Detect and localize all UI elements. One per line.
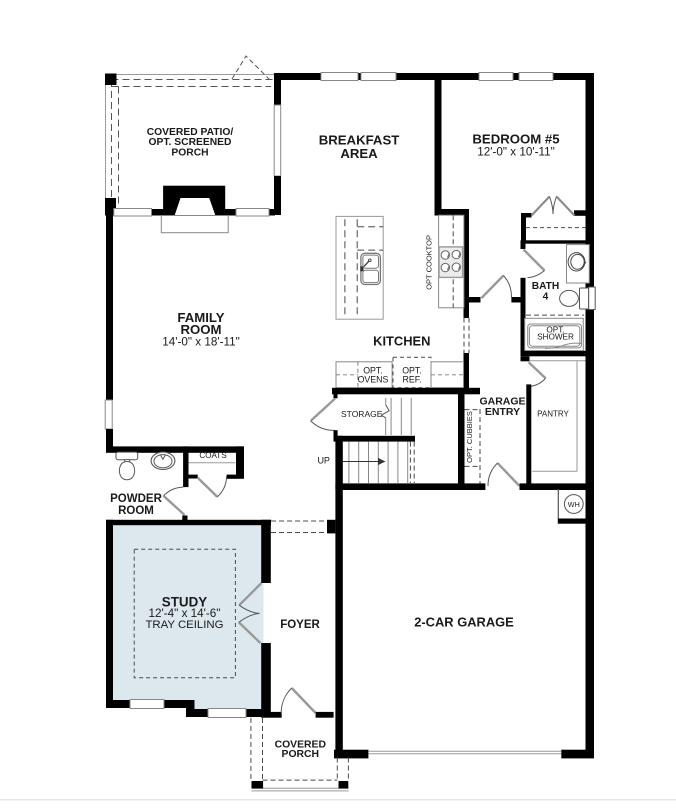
svg-text:BATH: BATH xyxy=(532,281,560,292)
svg-text:PANTRY: PANTRY xyxy=(537,409,569,418)
svg-text:POWDER: POWDER xyxy=(110,493,162,505)
svg-text:SHOWER: SHOWER xyxy=(537,332,574,341)
svg-text:OVENS: OVENS xyxy=(358,375,389,385)
svg-text:COATS: COATS xyxy=(199,451,227,460)
svg-text:PORCH: PORCH xyxy=(171,147,208,158)
svg-text:FOYER: FOYER xyxy=(280,619,320,631)
svg-text:AREA: AREA xyxy=(340,146,378,161)
svg-text:ENTRY: ENTRY xyxy=(485,406,520,418)
svg-text:4: 4 xyxy=(543,292,549,303)
svg-text:PORCH: PORCH xyxy=(282,749,320,760)
svg-text:WH: WH xyxy=(568,500,580,509)
svg-text:12'-0" x 10'-11": 12'-0" x 10'-11" xyxy=(477,146,555,159)
svg-text:2-CAR GARAGE: 2-CAR GARAGE xyxy=(414,615,514,630)
svg-text:OPT. CUBBIES: OPT. CUBBIES xyxy=(465,411,474,463)
svg-text:UP: UP xyxy=(317,456,330,466)
svg-text:KITCHEN: KITCHEN xyxy=(373,334,430,349)
svg-text:STORAGE: STORAGE xyxy=(341,409,383,419)
svg-text:ROOM: ROOM xyxy=(118,505,154,517)
svg-text:OPT COOKTOP: OPT COOKTOP xyxy=(425,235,434,290)
svg-text:REF.: REF. xyxy=(402,375,421,385)
svg-text:BEDROOM #5: BEDROOM #5 xyxy=(472,132,559,147)
svg-text:14'-0" x 18'-11": 14'-0" x 18'-11" xyxy=(162,336,240,349)
svg-text:TRAY CEILING: TRAY CEILING xyxy=(145,619,223,631)
